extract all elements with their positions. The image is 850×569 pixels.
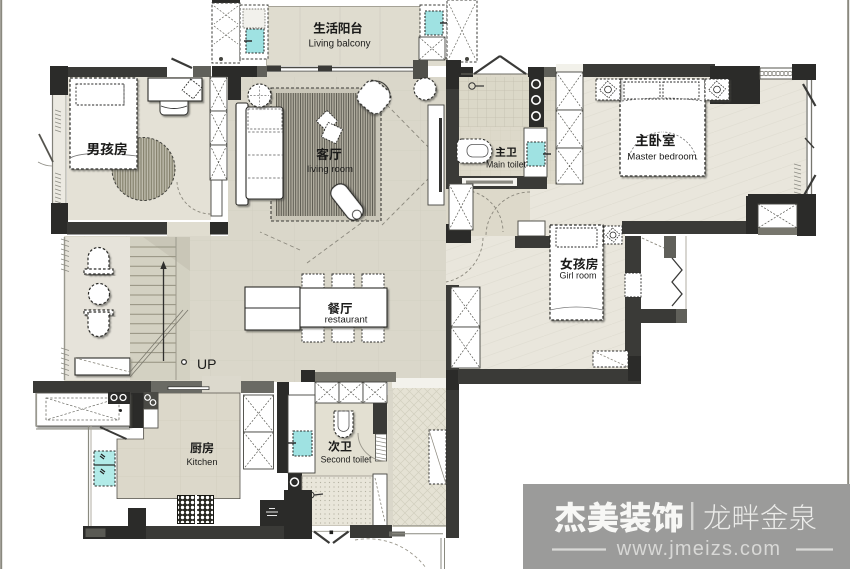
svg-text:living room: living room (307, 164, 353, 175)
svg-text:Main toilet: Main toilet (486, 160, 527, 170)
svg-text:Living balcony: Living balcony (308, 38, 370, 49)
svg-text:Girl room: Girl room (559, 271, 596, 281)
svg-text:www.jmeizs.com: www.jmeizs.com (616, 538, 782, 560)
svg-text:Second toilet: Second toilet (321, 454, 372, 464)
svg-text:Kitchen: Kitchen (186, 457, 217, 467)
svg-text:UP: UP (197, 356, 216, 372)
svg-text:Master bedroom: Master bedroom (627, 152, 696, 163)
svg-text:restaurant: restaurant (325, 315, 368, 326)
